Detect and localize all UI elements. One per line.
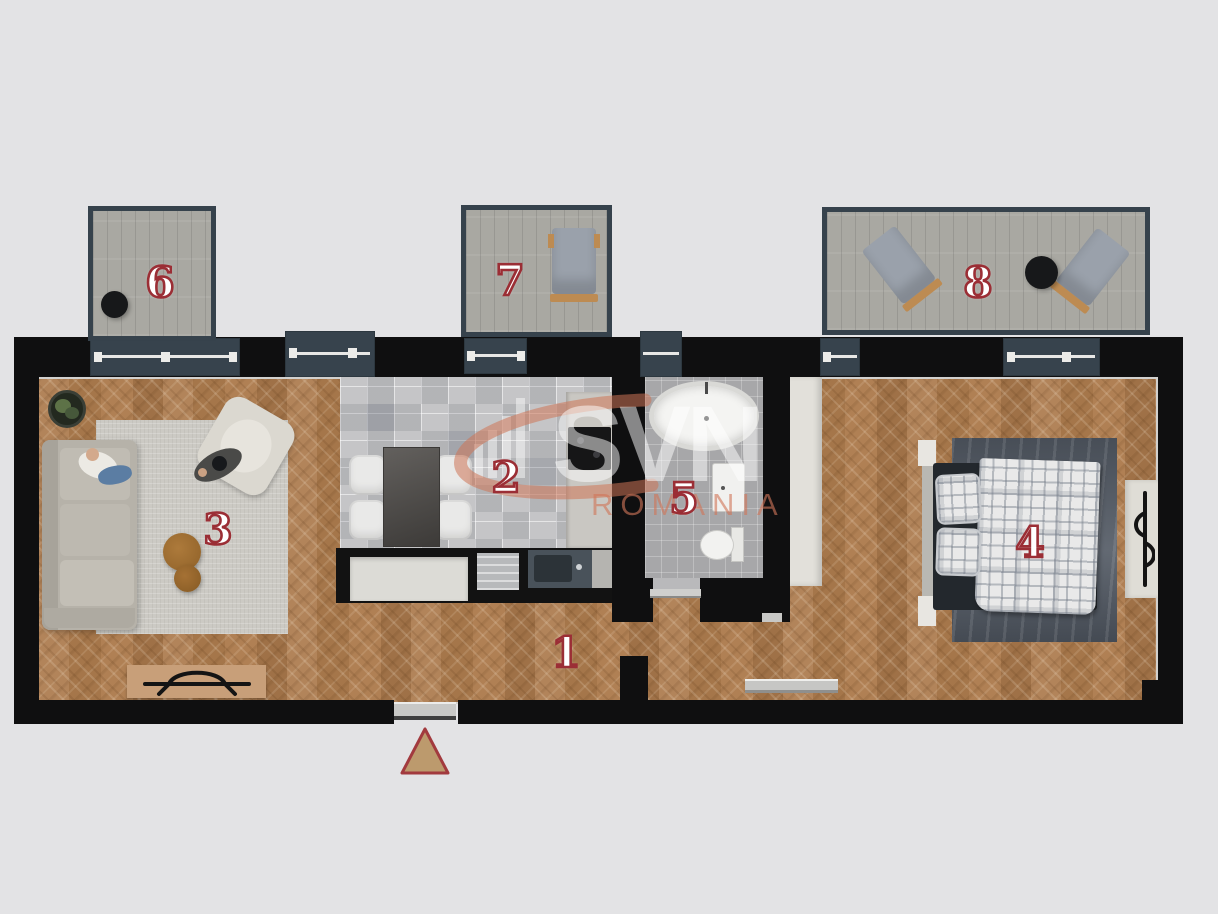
radiator (745, 679, 838, 693)
room-label-hallway: 1 (551, 632, 580, 674)
bathtub (649, 381, 759, 451)
wall-bath-bottom-left (645, 578, 653, 622)
window-frame (467, 354, 523, 357)
entrance-threshold (394, 702, 456, 720)
bed-pillow (935, 473, 983, 525)
wall-left (14, 337, 39, 724)
window-living-left (90, 338, 240, 376)
window-handle (229, 352, 237, 362)
kitchen-counter-right (566, 392, 612, 548)
lounger-arm (594, 234, 600, 248)
window-handle (823, 352, 831, 362)
window-handle (467, 351, 475, 361)
window-handle (1062, 352, 1071, 362)
room-label-living: 3 (203, 509, 232, 551)
lounger (550, 228, 598, 304)
sofa-armrest (44, 608, 135, 628)
burner (577, 437, 584, 444)
wall-bath-right (763, 377, 790, 622)
dining-chair (435, 455, 472, 495)
window-handle (348, 348, 357, 358)
wall-kitchen-bath (612, 377, 645, 622)
balcony-7 (461, 205, 612, 337)
hall-cabinet (788, 376, 822, 586)
dining-table (383, 447, 440, 547)
window-kitchen (464, 338, 527, 374)
person-sitting-head (86, 448, 99, 461)
wall-step-bottom-right (1142, 680, 1183, 722)
wall-stub-hall (620, 656, 648, 702)
window-frame (1008, 355, 1095, 358)
kitchen-counter-white (350, 557, 468, 601)
floorplan-canvas: SVN ROMANIA 1 2 3 4 5 6 7 8 (0, 0, 1218, 914)
coffee-table-small (174, 565, 201, 592)
kitchen-sink (528, 550, 595, 588)
clothes-rail-icon (1129, 491, 1155, 587)
wall-bottom-left (14, 700, 394, 724)
lounger-frame (550, 294, 598, 302)
sink-drain (721, 486, 725, 490)
bedroom-threshold (762, 613, 782, 622)
person-standing-arm (198, 468, 207, 477)
room-label-balcony-8: 8 (963, 262, 992, 304)
sofa-cushion (60, 504, 130, 556)
kitchen-tile-accent (448, 431, 475, 458)
window-bathroom (640, 331, 682, 377)
wall-bath-bottom-right (700, 578, 763, 622)
wall-right (1158, 337, 1183, 724)
kitchen-counter-end (592, 550, 612, 588)
dining-chair (349, 455, 386, 495)
kitchen-tile-accent (367, 404, 394, 431)
balcony-table-round (101, 291, 128, 318)
person-standing-head (212, 456, 227, 471)
window-hall (820, 338, 860, 376)
room-label-balcony-6: 6 (145, 262, 174, 304)
room-label-bedroom: 4 (1015, 522, 1044, 564)
sofa-back (42, 440, 58, 630)
cooktop (568, 427, 611, 470)
balcony-table-round (1025, 256, 1058, 289)
toilet-bowl (700, 530, 734, 560)
room-label-balcony-7: 7 (495, 260, 524, 302)
lounger-arm (548, 234, 554, 248)
bathroom-threshold (650, 589, 701, 598)
window-frame (290, 352, 371, 355)
lounger (860, 224, 944, 314)
window-handle (517, 351, 525, 361)
bathtub-faucet (705, 382, 708, 394)
sofa-cushion (60, 560, 134, 606)
bathtub-drain (704, 416, 709, 421)
window-handle (1007, 352, 1015, 362)
wall-bottom-right (458, 700, 1183, 724)
bathroom-sink (712, 463, 745, 512)
window-handle (289, 348, 297, 358)
window-bedroom (1003, 338, 1100, 376)
lounger-cushion (552, 228, 596, 294)
burner (593, 451, 600, 458)
plant-pot (48, 390, 86, 428)
lounger (1048, 226, 1132, 316)
window-living-right (285, 331, 375, 377)
kitchen-tile-accent (529, 458, 556, 485)
dining-chair (435, 500, 472, 540)
room-label-kitchen: 2 (491, 457, 520, 499)
entrance-marker (399, 726, 451, 776)
window-handle (94, 352, 102, 362)
kitchen-counter-band (336, 548, 612, 603)
sink-basin (534, 555, 572, 582)
wardrobe (1125, 480, 1160, 598)
tv-stand (127, 665, 266, 698)
bedroom-console-top (918, 440, 936, 466)
sink-faucet (576, 564, 582, 570)
room-label-bathroom: 5 (669, 478, 698, 520)
tv-icon (137, 667, 257, 697)
dishwasher (477, 553, 519, 590)
bed-pillow (935, 527, 982, 577)
window-frame (643, 352, 680, 355)
dining-chair (349, 500, 386, 540)
plant-leaves (65, 407, 79, 419)
window-handle (161, 352, 170, 362)
